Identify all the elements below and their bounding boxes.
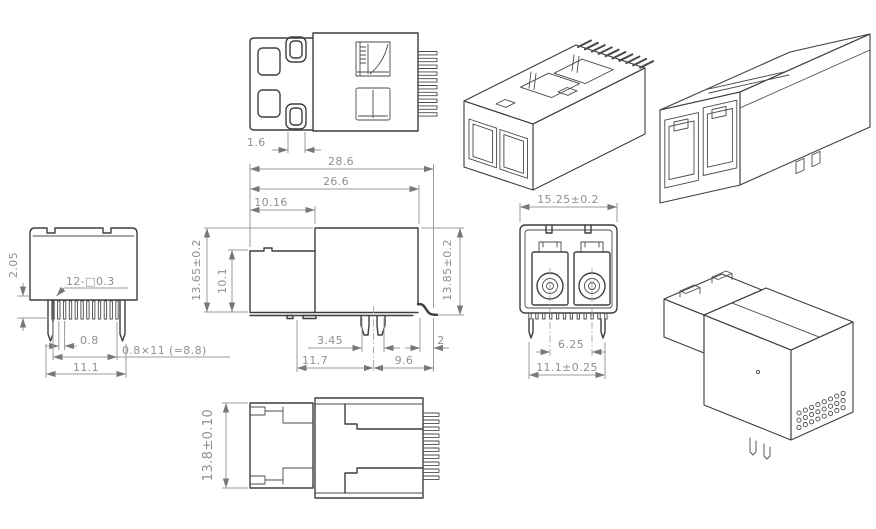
top-view-dimensions: 1.6 [247,132,321,153]
iso-c-pegs [750,438,770,459]
dim-pin-note: 12-□0.3 [66,275,115,288]
top-port-opening-1 [258,48,280,75]
smt-lead [418,304,437,315]
top-port-opening-2 [258,90,280,117]
dim-pin-length: 2.05 [7,252,20,278]
dim-port-pitch: 6.25 [558,338,584,351]
dim-front-length: 10.16 [254,196,288,209]
iso-a-top-hole-2 [554,59,613,83]
iso-b-port-2 [703,100,737,175]
pressfit-peg [361,316,385,335]
side-view-dimensions: 28.6 26.6 10.16 13.65±0.2 10.1 13.85±0.2… [190,155,464,372]
iso-c-pin-grid [797,391,845,429]
front-view-outline [520,225,617,338]
end-view-pins [52,301,118,319]
top-view-outline [250,33,418,131]
top-view: 1.6 [247,33,437,153]
dim-bottom-height: 13.8±0.10 [201,409,216,481]
side-view: 28.6 26.6 10.16 13.65±0.2 10.1 13.85±0.2… [190,155,464,372]
technical-drawing-sheet: 1.6 28.6 26.6 10.16 13.65±0.2 [0,0,876,529]
iso-b-port-1 [665,113,699,188]
top-view-inner-details [356,42,390,120]
bottom-view: 13.8±0.10 [201,398,439,498]
dim-front-leg-span: 11.1±0.25 [536,361,598,374]
top-view-pins [418,52,437,117]
dim-peg-width: 3.45 [317,334,343,347]
dim-total-length: 28.6 [328,155,354,168]
front-view-legs [529,319,605,338]
dim-leg-span: 11.1 [73,361,99,374]
iso-a-port-2 [500,130,528,179]
dim-lead-length: 2 [437,334,444,347]
dim-body-length: 26.6 [323,175,349,188]
side-view-outline [250,228,437,335]
dim-rear-length: 9.6 [395,354,414,367]
dim-front-width: 15.25±0.2 [537,193,599,206]
iso-view-front-left [660,34,870,203]
iso-a-rear-pins [578,41,653,68]
iso-view-rear [664,271,853,459]
connector-drawing: 1.6 28.6 26.6 10.16 13.65±0.2 [0,0,876,529]
iso-a-port-1 [469,119,497,168]
bottom-view-dimensions: 13.8±0.10 [201,403,248,488]
front-view: 15.25±0.2 6.25 11.1±0.25 [520,193,617,379]
bottom-view-pins [423,413,439,479]
iso-view-top-front [464,41,653,191]
dim-rear-height: 13.85±0.2 [441,239,454,301]
dim-front-height: 10.1 [216,268,229,294]
dim-pitch-total: 0.8×11 (=8.8) [122,344,207,357]
dim-top-latch-width: 1.6 [247,136,266,149]
front-view-pin-comb [529,313,607,319]
dim-overall-height: 13.65±0.2 [190,239,203,301]
dim-pin-pitch: 0.8 [80,334,99,347]
dim-peg-position: 11.7 [302,354,328,367]
bottom-view-outline [250,398,423,498]
